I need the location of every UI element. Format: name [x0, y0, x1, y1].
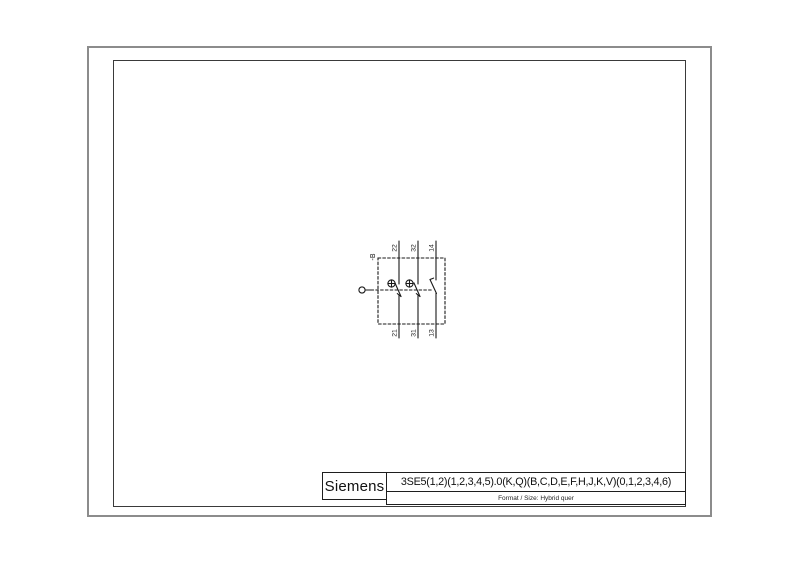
- terminal-label-bottom: 31: [411, 329, 418, 337]
- terminal-label-top: 22: [392, 244, 399, 252]
- circuit-symbol-svg: -B 22 32 14 21 31 13: [350, 230, 460, 345]
- part-number-cell: 3SE5(1,2)(1,2,3,4,5).0(K,Q)(B,C,D,E,F,H,…: [386, 472, 686, 492]
- part-number-text: 3SE5(1,2)(1,2,3,4,5).0(K,Q)(B,C,D,E,F,H,…: [401, 476, 671, 488]
- drawing-sheet: -B 22 32 14 21 31 13 Siemens 3SE5(1,2)(1…: [0, 0, 800, 565]
- terminal-label-bottom: 13: [429, 329, 436, 337]
- position-switch-circuit-symbol: -B 22 32 14 21 31 13: [350, 230, 460, 345]
- terminal-label-bottom: 21: [392, 329, 399, 337]
- actuator-icon: [359, 287, 371, 293]
- terminal-label-top: 32: [411, 244, 418, 252]
- positive-opening-icon: [388, 280, 395, 287]
- brand-cell: Siemens: [322, 472, 387, 500]
- terminal-label-top: 14: [429, 244, 436, 252]
- format-size-text: Format / Size: Hybrid quer: [498, 495, 574, 502]
- format-size-cell: Format / Size: Hybrid quer: [386, 491, 686, 505]
- title-block: Siemens 3SE5(1,2)(1,2,3,4,5).0(K,Q)(B,C,…: [322, 472, 686, 507]
- device-label: -B: [370, 253, 377, 260]
- brand-text: Siemens: [325, 478, 385, 495]
- positive-opening-icon: [406, 280, 413, 287]
